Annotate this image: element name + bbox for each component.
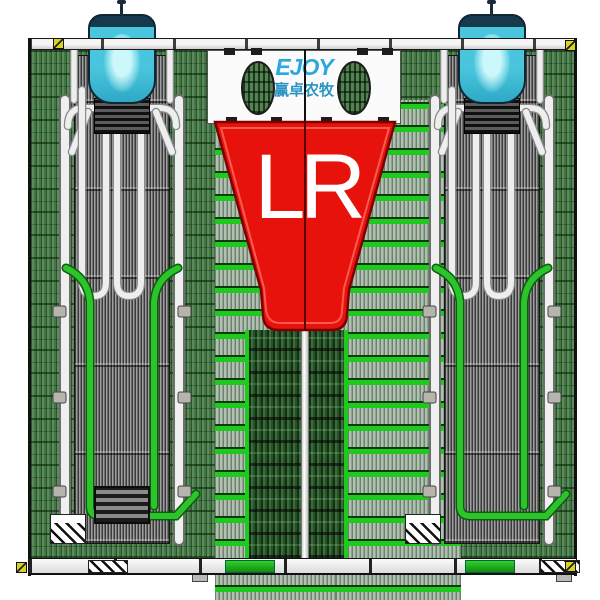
corner-marker-icon xyxy=(16,562,27,573)
hopper-vent-pipe xyxy=(490,0,493,16)
cad-drawing-canvas: EJOY 赢卓农牧 L R xyxy=(0,0,600,600)
bottom-rail-hatch-mark xyxy=(88,560,128,573)
hopper-vent-pipe xyxy=(120,0,123,16)
feed-hopper xyxy=(458,14,526,104)
panel-left-oval-opening xyxy=(241,61,275,115)
panel-clip xyxy=(357,48,368,55)
bottom-rail-green-segment xyxy=(225,560,275,573)
hatched-junction-box xyxy=(405,514,441,544)
top-frame-rail xyxy=(28,38,577,50)
funnel-label-right: R xyxy=(300,136,366,238)
panel-right-oval-opening xyxy=(337,61,371,115)
feed-hopper xyxy=(88,14,156,104)
panel-clip xyxy=(382,48,393,55)
side-fittings xyxy=(423,306,561,497)
side-fittings xyxy=(53,306,191,497)
corner-marker-icon xyxy=(565,40,576,51)
panel-clip xyxy=(251,48,262,55)
support-foot xyxy=(556,574,572,582)
support-foot xyxy=(192,574,208,582)
bottom-rail-green-segment xyxy=(465,560,515,573)
bottom-frame-edge xyxy=(28,573,577,575)
center-floor-column xyxy=(245,330,348,558)
center-drop-pipe xyxy=(301,330,309,560)
panel-clip xyxy=(224,48,235,55)
sorting-funnel: L R xyxy=(200,118,410,348)
hatched-junction-box xyxy=(50,514,86,544)
right-frame-edge xyxy=(574,38,577,576)
heat-grate xyxy=(94,486,150,524)
left-frame-edge xyxy=(28,38,31,576)
panel-center-divider xyxy=(304,49,306,123)
left-farrowing-crate xyxy=(60,0,184,558)
right-farrowing-crate xyxy=(430,0,554,558)
corner-marker-icon xyxy=(53,38,64,49)
corner-marker-icon xyxy=(565,561,576,572)
funnel-label-left: L xyxy=(254,136,305,238)
header-panel: EJOY 赢卓农牧 xyxy=(207,50,401,124)
